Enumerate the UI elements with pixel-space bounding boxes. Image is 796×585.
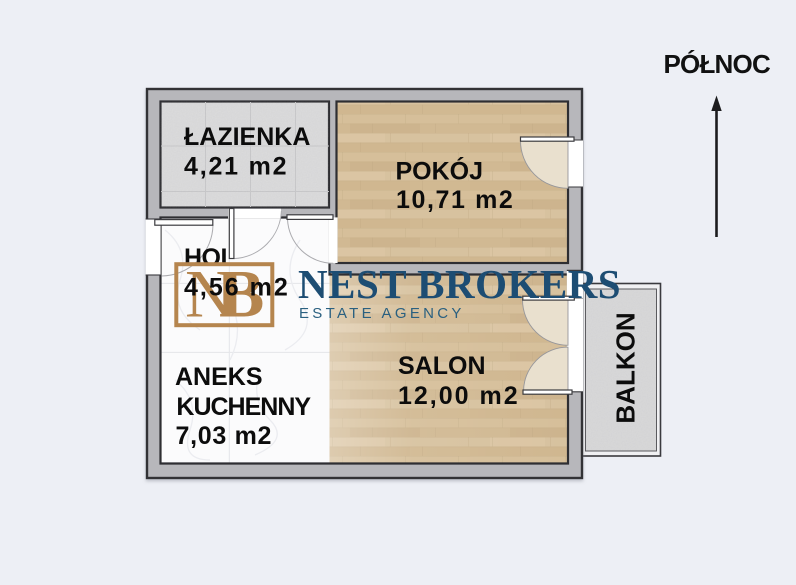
svg-text:10,71 m2: 10,71 m2 [396, 186, 514, 214]
svg-text:NEST BROKERS: NEST BROKERS [298, 261, 621, 307]
svg-text:PÓŁNOC: PÓŁNOC [664, 49, 771, 79]
svg-text:12,00 m2: 12,00 m2 [398, 382, 520, 410]
svg-text:ANEKS: ANEKS [175, 363, 263, 391]
svg-text:ŁAZIENKA: ŁAZIENKA [184, 123, 310, 151]
svg-text:BALKON: BALKON [611, 312, 641, 423]
svg-text:4,56 m2: 4,56 m2 [184, 274, 290, 302]
svg-text:ESTATE AGENCY: ESTATE AGENCY [299, 305, 465, 322]
svg-text:7,03 m2: 7,03 m2 [176, 422, 273, 450]
svg-text:SALON: SALON [398, 352, 486, 380]
svg-text:KUCHENNY: KUCHENNY [176, 393, 311, 421]
svg-text:4,21 m2: 4,21 m2 [184, 152, 288, 180]
svg-text:POKÓJ: POKÓJ [396, 156, 484, 186]
